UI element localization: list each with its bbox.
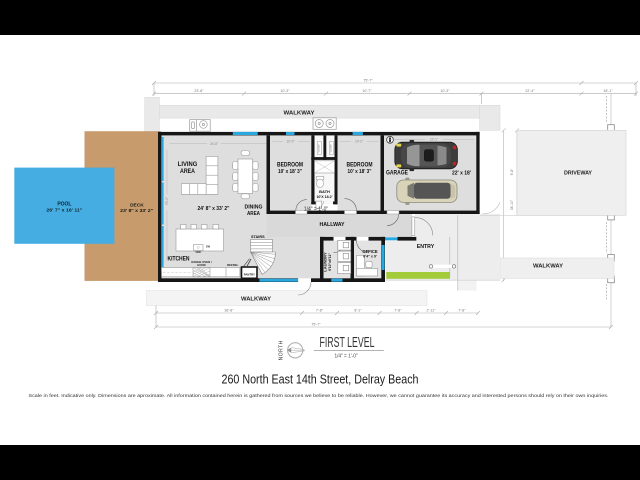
svg-text:NORTH: NORTH	[279, 340, 285, 360]
svg-text:7'-8": 7'-8"	[316, 309, 324, 313]
svg-text:CLOSET: CLOSET	[319, 143, 321, 152]
svg-text:10' x 18' 3": 10' x 18' 3"	[348, 169, 372, 175]
svg-text:7'-8": 7'-8"	[458, 309, 466, 313]
svg-text:2'-11": 2'-11"	[427, 309, 437, 313]
svg-text:1/4" = 1'-0": 1/4" = 1'-0"	[335, 353, 358, 359]
svg-text:HALLWAY: HALLWAY	[320, 222, 345, 228]
svg-text:6'4" x 9': 6'4" x 9'	[363, 255, 377, 259]
svg-text:PANTRY: PANTRY	[244, 272, 255, 276]
svg-text:22'-1": 22'-1"	[430, 138, 438, 142]
svg-text:10'-3": 10'-3"	[440, 89, 450, 93]
svg-text:10'X 18.2': 10'X 18.2'	[316, 195, 332, 199]
svg-text:WALKWAY: WALKWAY	[533, 264, 563, 270]
svg-text:22'-4": 22'-4"	[525, 89, 535, 93]
svg-text:1/4" = 1'-0": 1/4" = 1'-0"	[304, 207, 329, 213]
svg-text:24' 8" x 33' 2": 24' 8" x 33' 2"	[198, 206, 230, 212]
svg-text:75'-7": 75'-7"	[311, 323, 321, 327]
svg-text:10'-2": 10'-2"	[355, 140, 363, 144]
svg-text:10'-3": 10'-3"	[280, 89, 290, 93]
svg-text:23' 8" x 33' 2": 23' 8" x 33' 2"	[120, 208, 153, 213]
svg-text:HOOD: HOOD	[197, 263, 205, 267]
svg-text:GARAGE: GARAGE	[386, 170, 408, 176]
svg-text:18'-1": 18'-1"	[603, 89, 613, 93]
svg-text:STAIRS: STAIRS	[251, 235, 265, 239]
svg-text:POOL: POOL	[57, 201, 71, 207]
svg-text:10'-2": 10'-2"	[286, 140, 294, 144]
svg-text:CLOSET: CLOSET	[331, 143, 333, 152]
svg-text:FIRST LEVEL: FIRST LEVEL	[320, 335, 375, 351]
svg-text:260 North East 14th Street, De: 260 North East 14th Street, Delray Beach	[222, 372, 419, 387]
svg-text:WALKWAY: WALKWAY	[284, 110, 315, 116]
svg-text:AREA: AREA	[247, 211, 260, 217]
svg-text:BEDROOM: BEDROOM	[347, 163, 373, 169]
svg-text:10'-7": 10'-7"	[362, 89, 372, 93]
svg-text:REFRIG.: REFRIG.	[227, 263, 239, 267]
svg-text:23'-8": 23'-8"	[194, 89, 204, 93]
svg-text:Scale in feet. Indicative only: Scale in feet. Indicative only. Dimensio…	[29, 393, 609, 398]
svg-text:10' x 18' 3": 10' x 18' 3"	[278, 169, 302, 175]
svg-text:9'-8": 9'-8"	[510, 168, 514, 176]
svg-text:34'-10": 34'-10"	[510, 199, 514, 210]
svg-text:33'-2": 33'-2"	[165, 197, 169, 205]
svg-text:DRIVEWAY: DRIVEWAY	[564, 171, 592, 177]
svg-text:22' x 18': 22' x 18'	[452, 171, 471, 177]
svg-text:75'-7": 75'-7"	[363, 79, 373, 83]
svg-text:6'10"x6'11": 6'10"x6'11"	[328, 253, 332, 271]
svg-text:OFFICE: OFFICE	[362, 249, 378, 254]
svg-text:WALKWAY: WALKWAY	[241, 297, 271, 303]
svg-text:DINING: DINING	[245, 205, 263, 211]
svg-text:7'-8": 7'-8"	[394, 309, 402, 313]
svg-text:26' 7" x 16' 11": 26' 7" x 16' 11"	[46, 208, 82, 213]
svg-text:24'-8": 24'-8"	[210, 142, 218, 146]
svg-text:ENTRY: ENTRY	[417, 244, 435, 250]
svg-text:KITCHEN: KITCHEN	[168, 256, 190, 263]
svg-text:LAUNDRY: LAUNDRY	[323, 252, 328, 272]
svg-text:SINK: SINK	[195, 251, 201, 254]
svg-text:36'-8": 36'-8"	[224, 309, 234, 313]
svg-text:BATH: BATH	[319, 189, 330, 194]
svg-text:AREA: AREA	[180, 169, 196, 175]
svg-text:LIVING: LIVING	[178, 162, 198, 168]
svg-text:8'-1": 8'-1"	[354, 309, 362, 313]
svg-text:BEDROOM: BEDROOM	[277, 163, 303, 169]
